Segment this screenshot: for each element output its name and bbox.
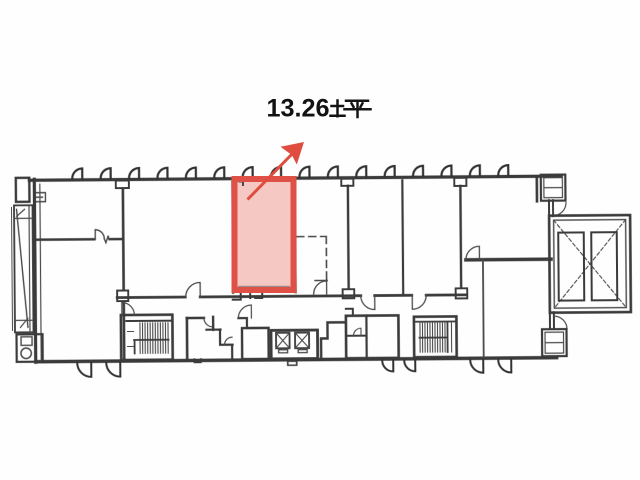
svg-text:13.26: 13.26 (267, 95, 330, 123)
